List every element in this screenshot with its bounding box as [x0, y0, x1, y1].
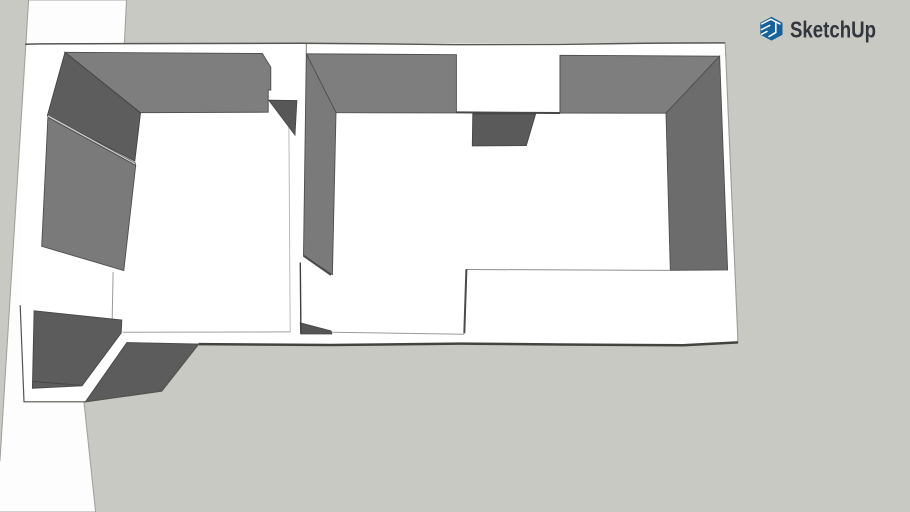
- svg-text:SketchUp: SketchUp: [790, 16, 876, 42]
